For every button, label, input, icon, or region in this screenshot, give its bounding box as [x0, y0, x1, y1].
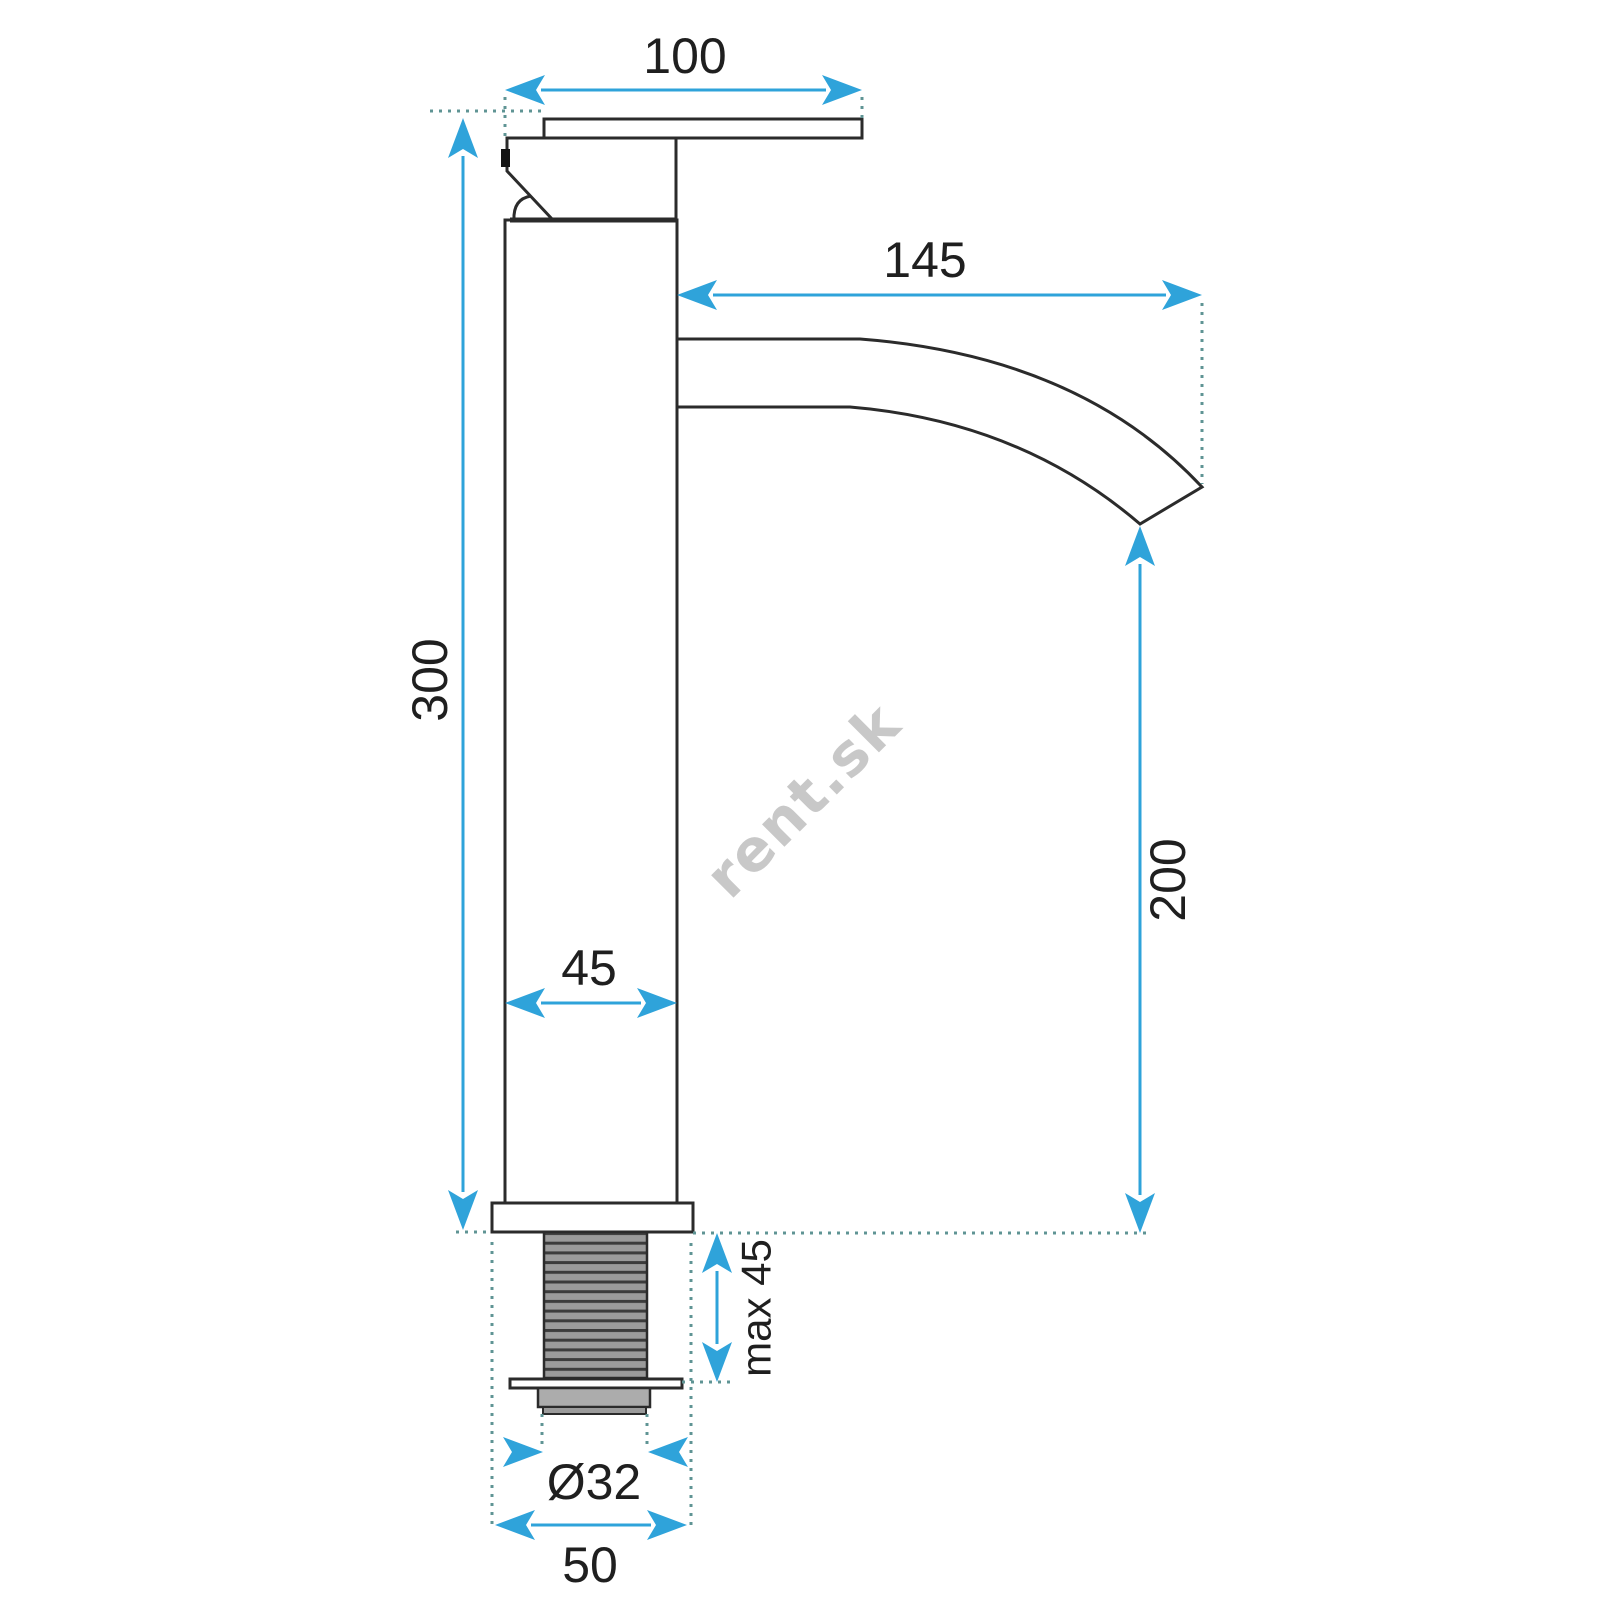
body-column — [505, 220, 677, 1203]
dimension-label-max-mount-thickness: max 45 — [733, 1239, 780, 1377]
handle-plate — [544, 119, 862, 138]
dimension-label-thread-diameter: Ø32 — [547, 1454, 642, 1510]
arrowhead-right-icon — [647, 1510, 687, 1540]
threaded-rod — [544, 1232, 647, 1378]
dimension-label-body-height: 300 — [402, 638, 458, 721]
mixer-head — [507, 138, 676, 220]
dimension-label-base-diameter: 50 — [562, 1537, 618, 1593]
mounting-washer — [510, 1379, 682, 1388]
mounting-nut-lower — [543, 1407, 646, 1414]
base-flange — [492, 1203, 693, 1232]
arrowhead-right-icon — [822, 75, 862, 105]
dimension-label-handle-width: 100 — [643, 28, 726, 84]
arrowhead-up-icon — [702, 1233, 732, 1273]
diagram-canvas: rent.sk 100 145 — [0, 0, 1600, 1600]
dimension-label-spout-reach: 145 — [883, 232, 966, 288]
arrowhead-right-icon — [1162, 280, 1202, 310]
arrowhead-up-icon — [448, 118, 478, 158]
mounting-nut — [538, 1388, 650, 1407]
arrowhead-right-icon — [503, 1437, 543, 1467]
drawing-page: rent.sk 100 145 — [0, 0, 1600, 1600]
dimension-thread-diameter: Ø32 — [503, 1414, 688, 1510]
set-screw-mark — [501, 149, 510, 167]
dimension-max-mount-thickness: max 45 — [682, 1233, 780, 1382]
arrowhead-down-icon — [1125, 1193, 1155, 1233]
dimension-label-body-diameter: 45 — [561, 940, 617, 996]
arrowhead-down-icon — [448, 1190, 478, 1230]
arrowhead-down-icon — [702, 1342, 732, 1382]
arrowhead-left-icon — [677, 280, 717, 310]
arrowhead-left-icon — [495, 1510, 535, 1540]
spout — [677, 339, 1202, 524]
lever-joint-arc — [514, 196, 531, 220]
arrowhead-up-icon — [1125, 526, 1155, 566]
watermark-text: rent.sk — [692, 689, 914, 911]
dimension-label-spout-height: 200 — [1140, 838, 1196, 921]
arrowhead-left-icon — [505, 75, 545, 105]
arrowhead-left-icon — [648, 1437, 688, 1467]
